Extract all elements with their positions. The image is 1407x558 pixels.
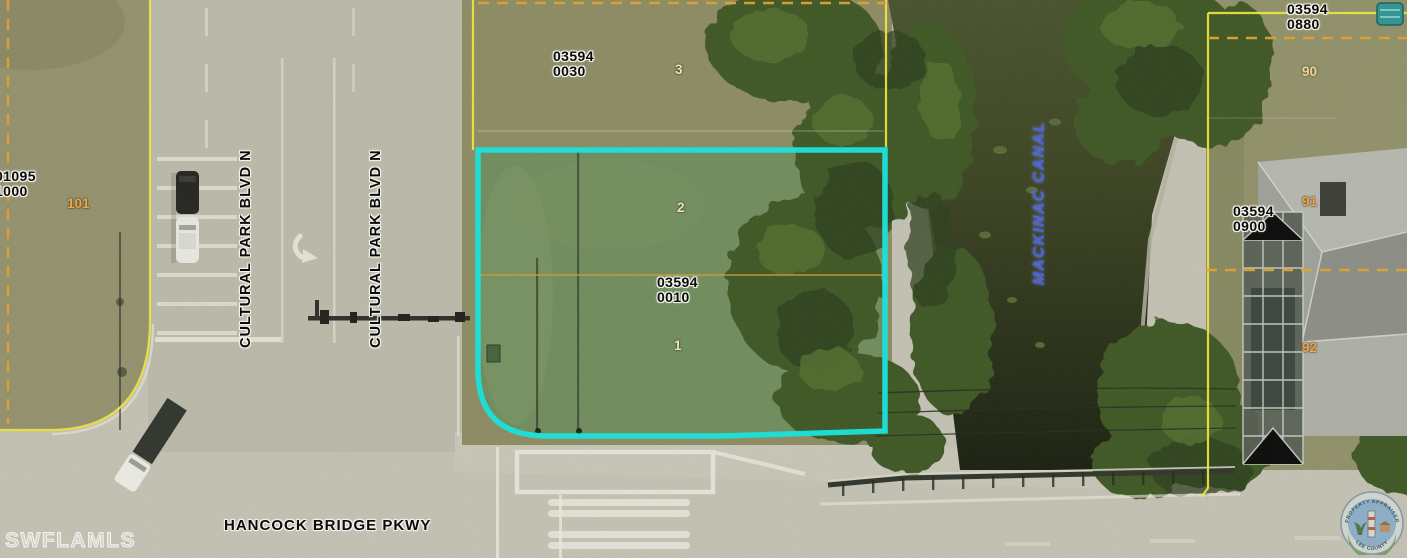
parcel-label-northeast: 03594 0880	[1287, 2, 1328, 32]
parcel-label-subject: 03594 0010	[657, 275, 698, 305]
parcel-page: 1000	[0, 184, 36, 199]
street-label-hancock-bridge-pkwy: HANCOCK BRIDGE PKWY	[224, 517, 431, 534]
parcel-book: 01095	[0, 169, 36, 184]
lot-number-90: 90	[1302, 64, 1317, 79]
lot-number-92: 92	[1302, 340, 1317, 355]
lot-number-3: 3	[675, 62, 683, 77]
parcel-book: 03594	[1287, 2, 1328, 17]
lot-number-2: 2	[677, 200, 685, 215]
lot-number-91: 91	[1302, 194, 1317, 209]
lot-number-1: 1	[674, 338, 682, 353]
aerial-parcel-map: 01095 1000 101 03594 0030 3 2 03594 0010…	[0, 0, 1407, 558]
lot-number-101: 101	[67, 196, 90, 211]
parcel-page: 0900	[1233, 219, 1274, 234]
parcel-label-northwest: 01095 1000	[0, 169, 36, 199]
photo-grain-overlay	[0, 0, 1407, 558]
parcel-page: 0880	[1287, 17, 1328, 32]
street-label-cultural-park-east: CULTURAL PARK BLVD N	[368, 149, 384, 349]
aerial-imagery	[0, 0, 1407, 558]
street-label-cultural-park-west: CULTURAL PARK BLVD N	[238, 149, 254, 349]
lee-county-property-appraiser-logo: PROPERTY APPRAISER LEE COUNTY	[1340, 491, 1404, 555]
lighthouse-icon	[1368, 511, 1375, 537]
parcel-label-east: 03594 0900	[1233, 204, 1274, 234]
parcel-book: 03594	[657, 275, 698, 290]
parcel-page: 0030	[553, 64, 594, 79]
parcel-book: 03594	[553, 49, 594, 64]
mls-watermark: SWFLAMLS	[5, 529, 136, 553]
waterway-label-mackinac-canal: MACKINAC CANAL	[1031, 118, 1049, 288]
parcel-page: 0010	[657, 290, 698, 305]
parcel-label-north: 03594 0030	[553, 49, 594, 79]
parcel-book: 03594	[1233, 204, 1274, 219]
